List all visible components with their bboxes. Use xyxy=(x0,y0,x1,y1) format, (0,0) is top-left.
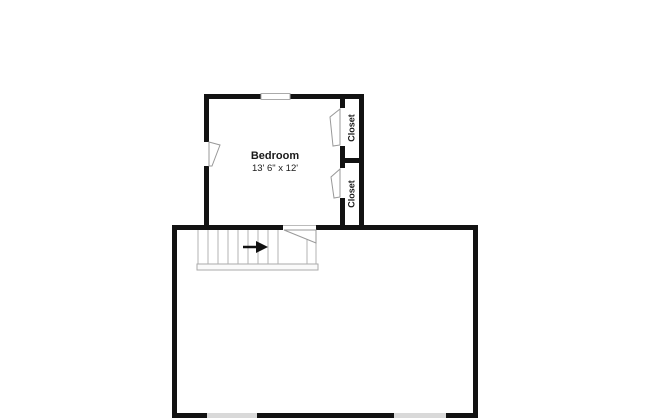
stair-direction-arrow xyxy=(243,241,268,253)
lower-room-right-wall xyxy=(473,225,478,418)
closet-top-label: Closet xyxy=(346,114,356,142)
bedroom-left-wall-upper xyxy=(204,94,209,142)
bedroom-top-wall-right xyxy=(290,94,364,99)
stair-door xyxy=(284,230,316,243)
floor-plan-canvas: Bedroom 13' 6" x 12' Closet Closet xyxy=(0,0,650,420)
closet-left-wall-seg2 xyxy=(340,146,345,168)
bedroom-window xyxy=(261,94,290,100)
bedroom-top-wall-left xyxy=(204,94,261,99)
floor-plan: Bedroom 13' 6" x 12' Closet Closet xyxy=(0,0,650,420)
lower-room-top-wall-left xyxy=(172,225,283,230)
lower-room-bottom-wall-seg1 xyxy=(172,413,207,418)
lower-room-left-wall xyxy=(172,225,177,418)
closet-top-door xyxy=(330,109,340,146)
stair-landing-edge xyxy=(197,264,318,270)
closet-divider-wall xyxy=(340,158,364,163)
bedroom-dimensions: 13' 6" x 12' xyxy=(252,163,298,174)
staircase xyxy=(197,230,318,270)
lower-room-bottom-wall-seg2 xyxy=(257,413,394,418)
lower-room-bottom-wall-seg3 xyxy=(446,413,478,418)
stair-door-threshold xyxy=(283,225,316,226)
lower-room-window-right xyxy=(394,413,446,418)
lower-room-top-wall-right xyxy=(316,225,478,230)
lower-room-window-left xyxy=(207,413,257,418)
closet-left-wall-seg1 xyxy=(340,94,345,108)
bedroom-left-wall-lower xyxy=(204,166,209,230)
closet-bottom-door xyxy=(331,169,340,198)
bedroom-door xyxy=(209,142,220,166)
closets: Closet Closet xyxy=(330,94,364,230)
bedroom-label: Bedroom xyxy=(251,150,300,162)
closet-bottom-label: Closet xyxy=(346,180,356,208)
